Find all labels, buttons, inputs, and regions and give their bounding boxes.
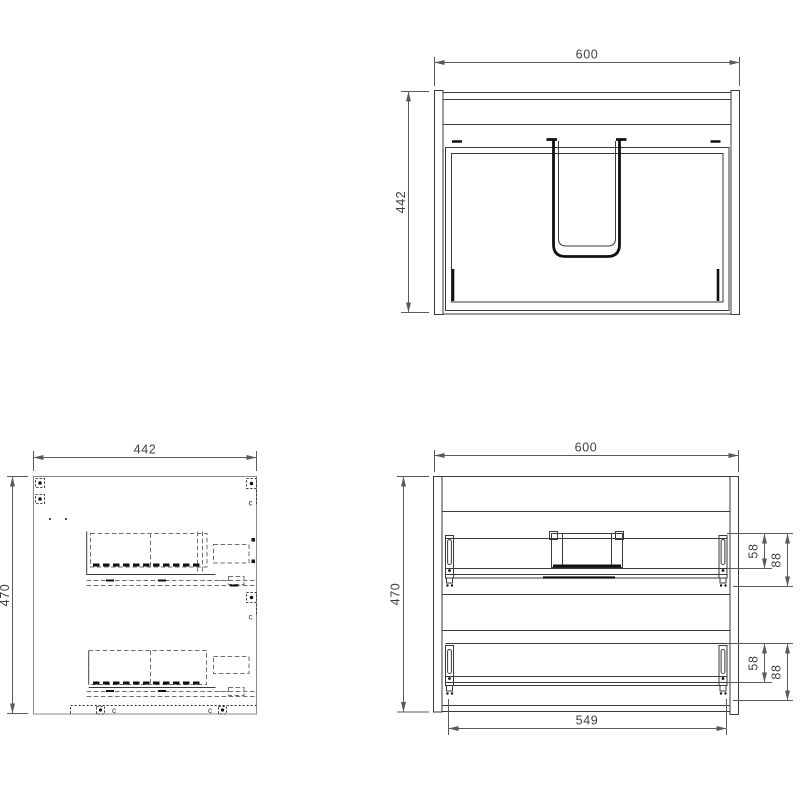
drawer-box-hidden-outline [87, 651, 256, 697]
bracket-slot [721, 540, 725, 565]
mounting-bracket-outlines [36, 479, 257, 715]
bracket-slot [448, 540, 452, 565]
drawer-front-outline [446, 148, 730, 311]
dim-label-clearance-upper: 88 [770, 552, 784, 567]
dim-label-internal-width: 600 [575, 441, 598, 455]
foot-dot [724, 584, 726, 586]
dim-label-front-width: 600 [576, 48, 599, 62]
bracket-dot [448, 677, 451, 680]
handle-cutout-inner-line [559, 141, 616, 246]
internal-front-view: 600 470 58 88 58 88 549 [389, 441, 794, 736]
foot-dot [720, 692, 722, 694]
dim-label-side-depth: 442 [134, 443, 157, 457]
screw-dot [250, 596, 253, 599]
dim-label-internal-height: 470 [389, 583, 403, 606]
hardware-mark: c [249, 613, 253, 622]
screw-dot [250, 482, 253, 485]
screw-dots [38, 481, 253, 711]
dim-label-front-height: 442 [394, 191, 408, 214]
hardware-mark: c [112, 706, 116, 715]
rail-assembly-lower [446, 644, 728, 695]
drawer-corner-ticks [452, 142, 721, 302]
rail-lines [446, 644, 728, 686]
foot-dot [724, 692, 726, 694]
bracket-slot [721, 650, 725, 674]
drawer-slide-lower [87, 651, 256, 697]
extension-lines [7, 451, 257, 714]
siphon-recess-box [550, 532, 624, 568]
bracket-dot [448, 569, 451, 572]
screw-dot [38, 497, 41, 500]
dim-label-rail-upper: 58 [747, 543, 761, 558]
hardware-mark: c [208, 706, 212, 715]
front-view: 600 442 [394, 48, 740, 315]
cabinet-carcass-lines [435, 91, 740, 315]
cabinet-carcass-lines [434, 477, 739, 715]
foot-dot [720, 584, 722, 586]
foot-dot [451, 584, 453, 586]
extension-lines [397, 450, 793, 735]
hardware-mark: c [249, 499, 253, 508]
screw-dot [99, 708, 102, 711]
slide-solid-edge [87, 532, 216, 575]
drawer-slide-upper [87, 532, 256, 586]
screw-dot [38, 481, 41, 484]
pilot-hole-dot [49, 518, 51, 520]
slide-dark-dashes [106, 581, 238, 586]
bracket-dot [722, 569, 725, 572]
foot-dot [451, 692, 453, 694]
dim-label-rail-lower: 58 [747, 655, 761, 670]
slide-end-blocks [252, 538, 256, 563]
foot-dot [446, 692, 448, 694]
side-panel-outline [34, 477, 257, 715]
rail-end-brackets [446, 646, 728, 692]
dim-label-clearance-lower: 88 [770, 664, 784, 679]
bracket-dot [722, 677, 725, 680]
vanity-cabinet-drawing: 600 442 442 470 [0, 0, 800, 800]
rail-end-brackets [446, 536, 728, 584]
dim-label-side-height: 470 [0, 584, 12, 607]
technical-drawing-canvas: 600 442 442 470 [0, 0, 800, 800]
screw-dot [221, 708, 224, 711]
bracket-slot [448, 650, 452, 674]
pilot-hole-dot [65, 518, 67, 520]
rail-lines [446, 539, 728, 579]
dim-label-slide-span: 549 [576, 714, 599, 728]
rail-assembly-upper [446, 532, 728, 587]
drawer-box-hidden-outline [87, 532, 256, 586]
foot-dot [446, 584, 448, 586]
side-view: 442 470 c [0, 443, 257, 716]
